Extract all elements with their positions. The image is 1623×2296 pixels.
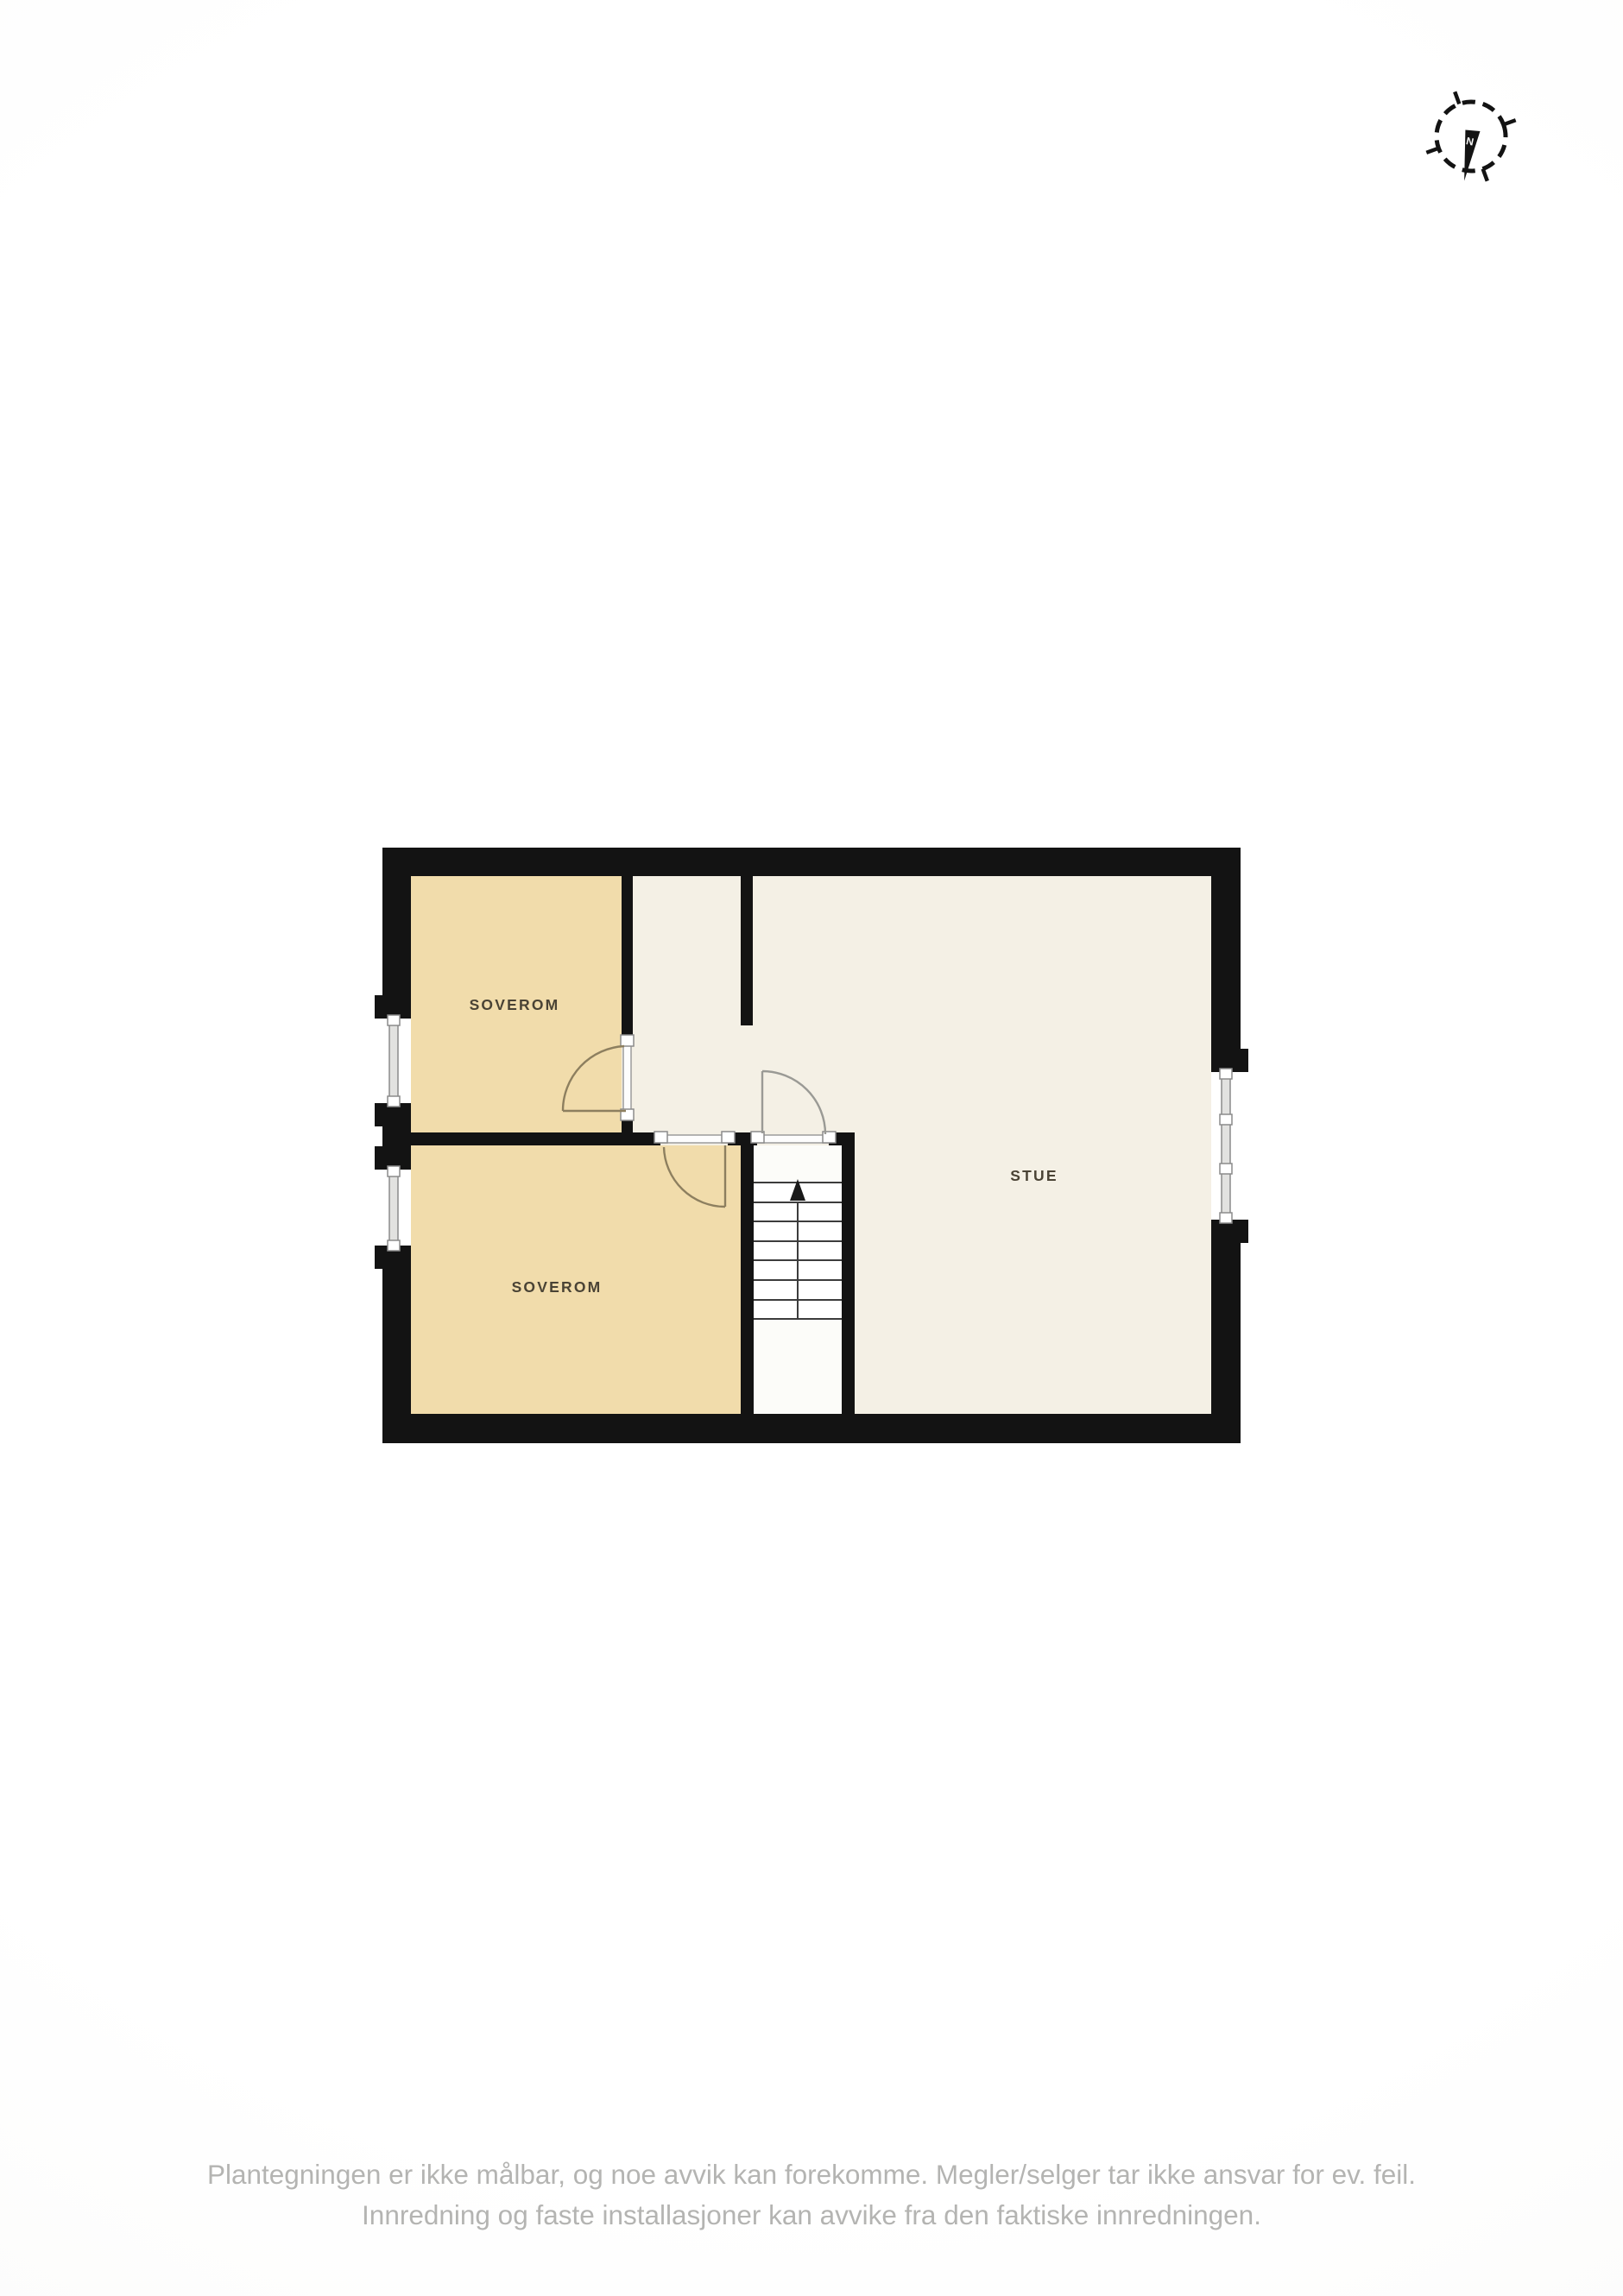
wall-soverom1-right-upper xyxy=(622,876,633,1041)
door-threshold xyxy=(660,1135,728,1143)
door-threshold xyxy=(757,1135,829,1143)
floorplan: SOVEROM SOVEROM STUE xyxy=(375,848,1248,1443)
floorplan-canvas: SOVEROM SOVEROM STUE N xyxy=(0,0,1623,2296)
wall-stair-right xyxy=(842,1132,855,1414)
wall-stair-left xyxy=(741,1132,754,1414)
door-threshold xyxy=(623,1041,631,1113)
staircase xyxy=(754,1179,842,1319)
compass-needle: N xyxy=(1455,129,1480,182)
window-left-2 xyxy=(382,1166,411,1251)
window-left-1 xyxy=(382,1015,411,1107)
compass-icon: N xyxy=(1411,76,1532,198)
room-soverom-1-label: SOVEROM xyxy=(470,996,560,1013)
window-right xyxy=(1211,1069,1241,1223)
disclaimer-line-2: Innredning og faste installasjoner kan a… xyxy=(0,2195,1623,2236)
room-stue-label: STUE xyxy=(1010,1167,1058,1184)
wall-hall-stue xyxy=(741,876,753,1025)
wall-mid-left xyxy=(397,1132,660,1145)
disclaimer-line-1: Plantegningen er ikke målbar, og noe avv… xyxy=(0,2154,1623,2195)
room-soverom-2-label: SOVEROM xyxy=(512,1278,603,1296)
disclaimer: Plantegningen er ikke målbar, og noe avv… xyxy=(0,2154,1623,2236)
